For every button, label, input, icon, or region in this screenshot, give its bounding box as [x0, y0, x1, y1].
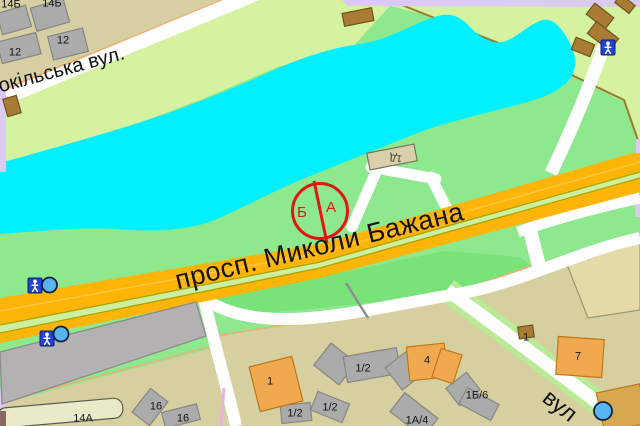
map-canvas[interactable]: окільська вул. просп. Миколи Бажана вул … — [0, 0, 640, 426]
bus-stop-icon[interactable] — [54, 327, 69, 342]
building-label: 1 — [523, 333, 529, 344]
bus-stop-icon[interactable] — [594, 402, 612, 420]
building-label: 1Б/6 — [466, 391, 489, 402]
building-label: 14А — [73, 414, 93, 425]
building-label: 7 — [575, 352, 581, 363]
building-label: 16 — [177, 414, 189, 425]
pedestrian-crossing-icon[interactable] — [601, 40, 615, 55]
pedestrian-crossing-icon[interactable] — [40, 331, 54, 346]
building-label: 16 — [150, 402, 162, 413]
pedestrian-crossing-icon[interactable] — [28, 278, 42, 293]
building-label: 1 — [267, 377, 273, 388]
building — [0, 411, 6, 426]
building-label: 1А/4 — [406, 416, 429, 426]
marker-point-b: Б — [297, 204, 307, 221]
building-label: 14Б — [1, 0, 20, 11]
marker-point-a: А — [326, 199, 336, 216]
building-label: 1/2 — [287, 409, 302, 420]
building-label: 1/2 — [322, 403, 337, 414]
road-junction — [530, 230, 539, 266]
bus-stop-icon[interactable] — [42, 278, 57, 293]
building-label: 1Д — [389, 151, 402, 162]
building-label: 1/2 — [355, 364, 370, 375]
building-label: 12 — [57, 36, 69, 47]
building-label: 4 — [424, 356, 430, 367]
building-label: 14Б — [42, 0, 61, 10]
building-label: 12 — [9, 48, 21, 59]
